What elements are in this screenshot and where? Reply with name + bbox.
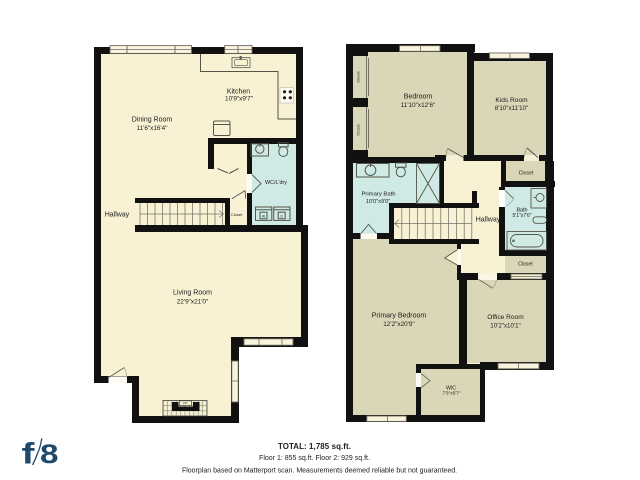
svg-text:7'3"x5'7": 7'3"x5'7"	[442, 391, 461, 397]
svg-text:f: f	[22, 438, 36, 471]
svg-text:Closet: Closet	[519, 171, 534, 177]
svg-text:Closet: Closet	[518, 262, 533, 268]
svg-text:10'9"x9'7": 10'9"x9'7"	[225, 95, 253, 102]
svg-text:WC/L'dry: WC/L'dry	[265, 180, 287, 186]
svg-text:Dining Room: Dining Room	[132, 117, 173, 124]
svg-text:TOTAL: 1,785 sq.ft.: TOTAL: 1,785 sq.ft.	[278, 442, 351, 451]
svg-text:8'10"x11'10": 8'10"x11'10"	[495, 105, 528, 112]
svg-text:Hallway: Hallway	[105, 212, 130, 219]
svg-text:22'9"x21'0": 22'9"x21'0"	[177, 299, 209, 306]
svg-text:10'2"x10'1": 10'2"x10'1"	[490, 322, 521, 329]
svg-text:Primary Bedroom: Primary Bedroom	[372, 313, 427, 320]
svg-text:Kids Room: Kids Room	[495, 97, 528, 104]
svg-text:Living Room: Living Room	[173, 290, 212, 297]
svg-text:Hallway: Hallway	[476, 217, 501, 224]
svg-text:10'0"x9'0": 10'0"x9'0"	[366, 199, 390, 205]
svg-text:11'6"x16'4": 11'6"x16'4"	[136, 125, 167, 132]
svg-text:Primary Bath: Primary Bath	[361, 191, 395, 197]
svg-text:12'2"x20'9": 12'2"x20'9"	[383, 321, 415, 328]
svg-text:Floorplan based on Matterport: Floorplan based on Matterport scan. Meas…	[182, 467, 457, 474]
svg-text:Closet: Closet	[356, 70, 361, 82]
svg-text:11'10"x12'6": 11'10"x12'6"	[401, 102, 436, 109]
svg-text:Office Room: Office Room	[487, 314, 524, 321]
svg-text:Bedroom: Bedroom	[404, 94, 433, 101]
svg-text:Floor 1: 855 sq.ft. Floor 2: 9: Floor 1: 855 sq.ft. Floor 2: 929 sq.ft.	[259, 455, 370, 462]
svg-text:FP: FP	[183, 402, 188, 406]
svg-text:8: 8	[40, 439, 59, 469]
svg-text:Closet: Closet	[356, 123, 361, 135]
svg-text:Closet: Closet	[231, 212, 243, 217]
svg-text:W: W	[262, 214, 265, 218]
svg-text:5'1"x7'6": 5'1"x7'6"	[512, 213, 531, 219]
